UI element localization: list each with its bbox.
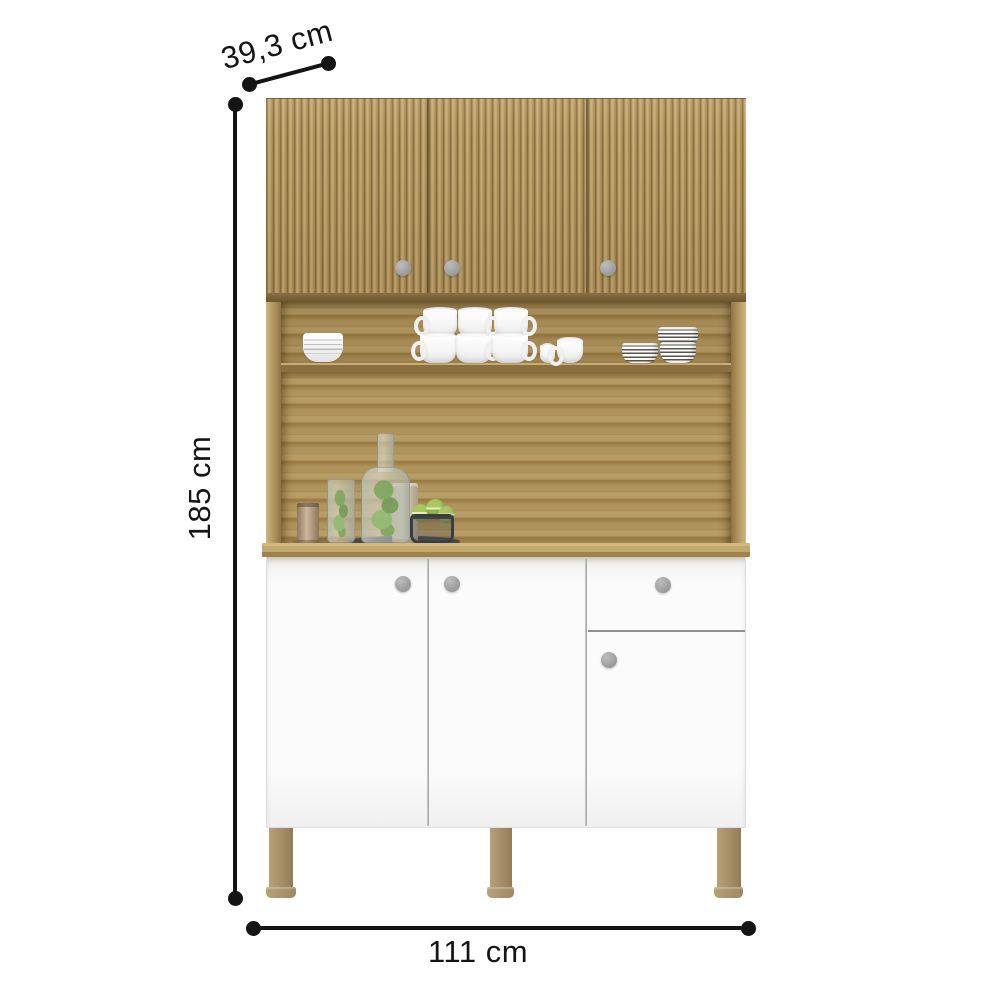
wire-fruit-basket (410, 514, 454, 544)
drawer-divider (588, 630, 745, 632)
product-dimension-diagram: 39,3 cm 185 cm 111 cm (0, 0, 1000, 1000)
cabinet-leg-center (490, 828, 512, 888)
base-door-left-knob (395, 576, 411, 592)
base-door-divider-right (585, 559, 587, 826)
cabinet-foot-left (266, 887, 296, 898)
striped-plate-stack (658, 327, 698, 342)
striped-bowl-large (660, 342, 696, 363)
glass-bottle-with-plant (361, 467, 410, 543)
hutch-side-panel-left (266, 302, 281, 543)
hutch-side-panel-right (731, 302, 746, 543)
drawer-knob (655, 577, 671, 593)
plant-sprig (367, 477, 405, 536)
cabinet-leg-right (717, 828, 741, 888)
bronze-canister (297, 503, 319, 543)
striped-bowl-small (622, 343, 658, 363)
upper-door-center-knob (444, 260, 460, 276)
cabinet-leg-left (269, 828, 293, 888)
base-door-right-knob (601, 652, 617, 668)
base-door-divider-left (427, 559, 429, 826)
glass-vase-with-plant (327, 479, 355, 543)
coffee-cup (492, 334, 528, 363)
kitchen-cabinet (0, 0, 1000, 1000)
small-cup (557, 339, 583, 363)
countertop (262, 543, 750, 557)
hutch-shelf-board (281, 363, 731, 372)
upper-cabinet-bottom-strip (266, 293, 746, 302)
base-door-center-knob (444, 576, 460, 592)
base-cabinet (266, 557, 746, 828)
plant-sprig (331, 487, 352, 537)
upper-door-right-knob (600, 260, 616, 276)
coffee-cup (456, 334, 492, 363)
white-bowl-stack (303, 333, 343, 362)
cabinet-foot-center (487, 887, 514, 898)
upper-door-left-knob (395, 260, 411, 276)
coffee-cup (420, 334, 456, 363)
cabinet-foot-right (714, 887, 743, 898)
